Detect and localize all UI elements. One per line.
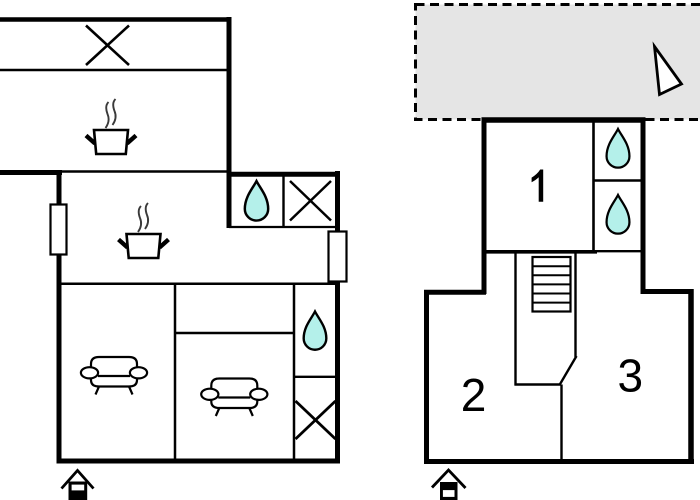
svg-text:2: 2 <box>461 369 487 421</box>
svg-text:3: 3 <box>618 350 644 402</box>
